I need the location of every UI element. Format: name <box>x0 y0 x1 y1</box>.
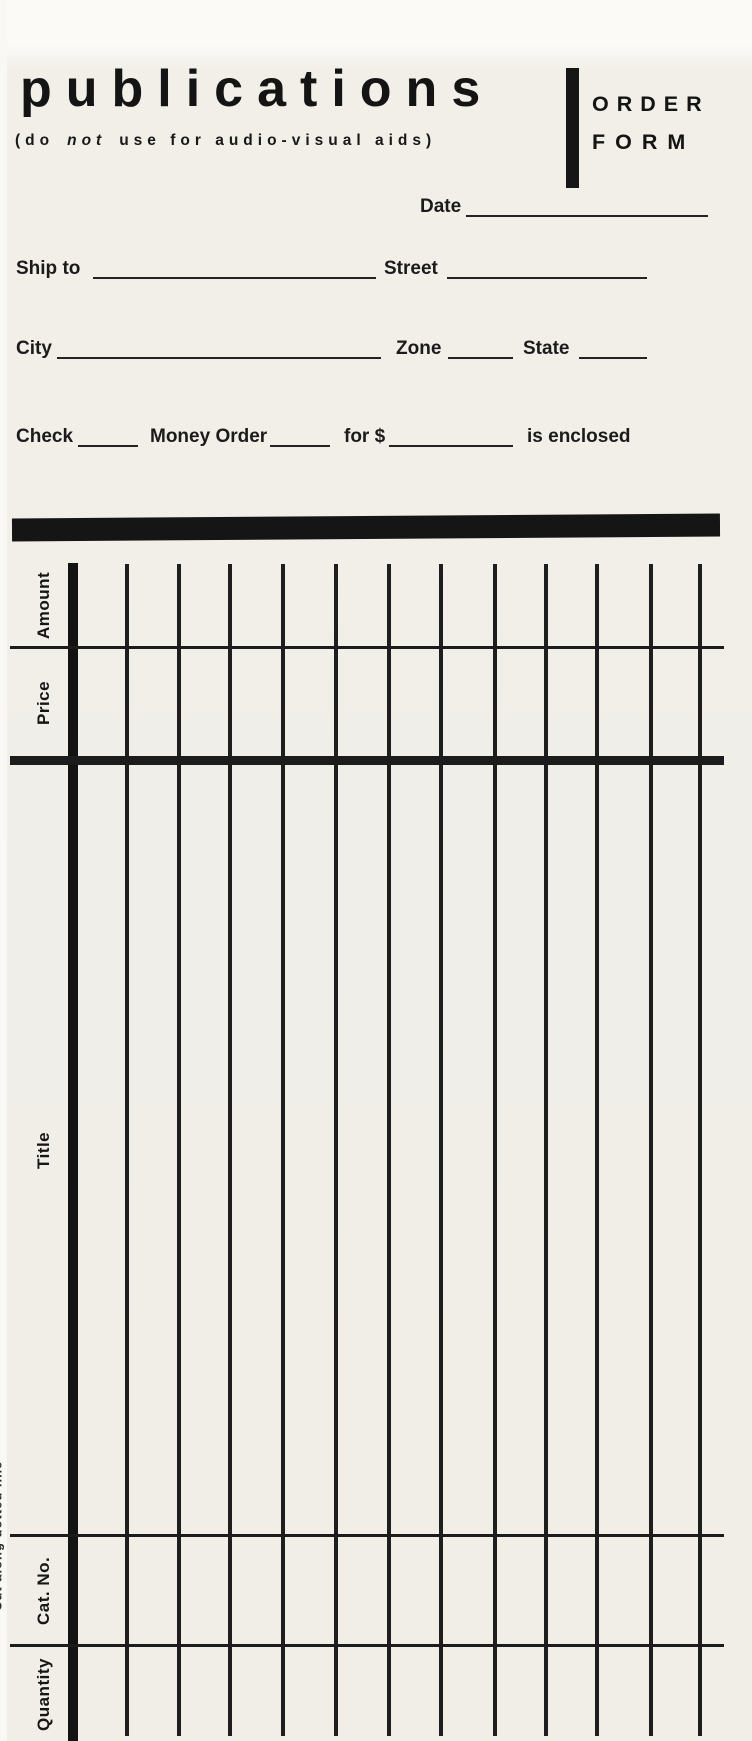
money-order-fill-line <box>270 445 330 447</box>
table-header-quantity: Quantity <box>26 1648 62 1741</box>
street-label: Street <box>384 258 438 280</box>
table-grid-line <box>334 564 338 1736</box>
subtitle: (donotuse for audio-visual aids) <box>15 132 436 150</box>
street-fill-line <box>447 277 647 279</box>
table-grid-line <box>387 564 391 1736</box>
table-header-price: Price <box>26 650 62 756</box>
check-label: Check <box>16 426 73 448</box>
table-row-line-amount-price <box>10 646 724 649</box>
table-grid-line <box>698 564 702 1736</box>
table-grid-line <box>281 564 285 1736</box>
check-fill-line <box>78 445 138 447</box>
table-grid-line <box>649 564 653 1736</box>
badge-form-label: FORM <box>592 130 710 155</box>
page-title: publications <box>20 56 494 124</box>
date-fill-line <box>466 215 708 217</box>
ship-to-fill-line <box>93 277 376 279</box>
table-header-amount: Amount <box>26 563 62 647</box>
for-dollar-label: for $ <box>344 426 385 448</box>
amount-fill-line <box>389 445 513 447</box>
state-label: State <box>523 338 569 360</box>
table-grid-line <box>125 564 129 1736</box>
edge-cut-note: Cut along dotted line <box>0 1330 5 1741</box>
order-form-page: publications (donotuse for audio-visual … <box>0 0 752 1741</box>
subtitle-emphasis: not <box>67 132 106 149</box>
table-grid-line <box>439 564 443 1736</box>
money-order-label: Money Order <box>150 426 267 448</box>
table-row-line-title-catno <box>10 1534 724 1537</box>
table-grid-line <box>595 564 599 1736</box>
city-fill-line <box>57 357 381 359</box>
table-header-cat-no: Cat. No. <box>26 1538 62 1644</box>
badge-order-label: ORDER <box>592 92 710 117</box>
section-divider-bar <box>12 514 720 542</box>
ship-to-label: Ship to <box>16 258 80 280</box>
subtitle-rest: use for audio-visual aids) <box>119 132 436 149</box>
header-divider-bar <box>566 68 579 188</box>
table-grid-line <box>228 564 232 1736</box>
is-enclosed-label: is enclosed <box>527 426 631 448</box>
table-grid-line <box>177 564 181 1736</box>
subtitle-open: (do <box>15 132 54 149</box>
table-header-divider-line <box>68 563 78 1741</box>
table-row-line-catno-quantity <box>10 1644 724 1647</box>
table-row-line-price-title <box>10 756 724 765</box>
city-label: City <box>16 338 52 360</box>
zone-label: Zone <box>396 338 441 360</box>
state-fill-line <box>579 357 647 359</box>
order-form-badge: ORDER FORM <box>592 92 710 155</box>
table-grid-line <box>544 564 548 1736</box>
table-header-title: Title <box>26 766 62 1534</box>
zone-fill-line <box>448 357 513 359</box>
table-grid-line <box>493 564 497 1736</box>
date-label: Date <box>420 196 461 218</box>
